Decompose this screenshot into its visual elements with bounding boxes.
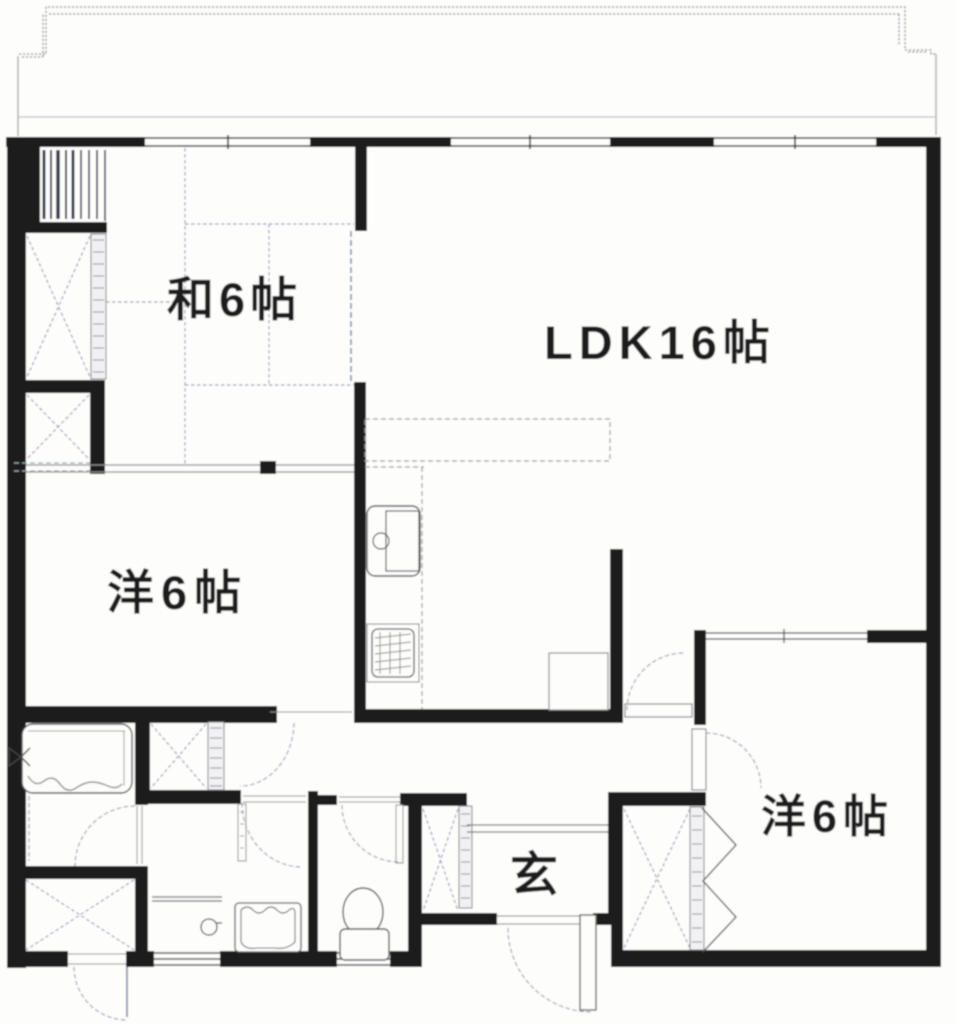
svg-text:玄: 玄 bbox=[510, 849, 558, 902]
svg-text:洋6帖: 洋6帖 bbox=[107, 566, 248, 619]
svg-text:和6帖: 和6帖 bbox=[167, 273, 302, 326]
svg-text:洋6帖: 洋6帖 bbox=[761, 791, 894, 842]
svg-text:LDK16帖: LDK16帖 bbox=[544, 316, 776, 369]
